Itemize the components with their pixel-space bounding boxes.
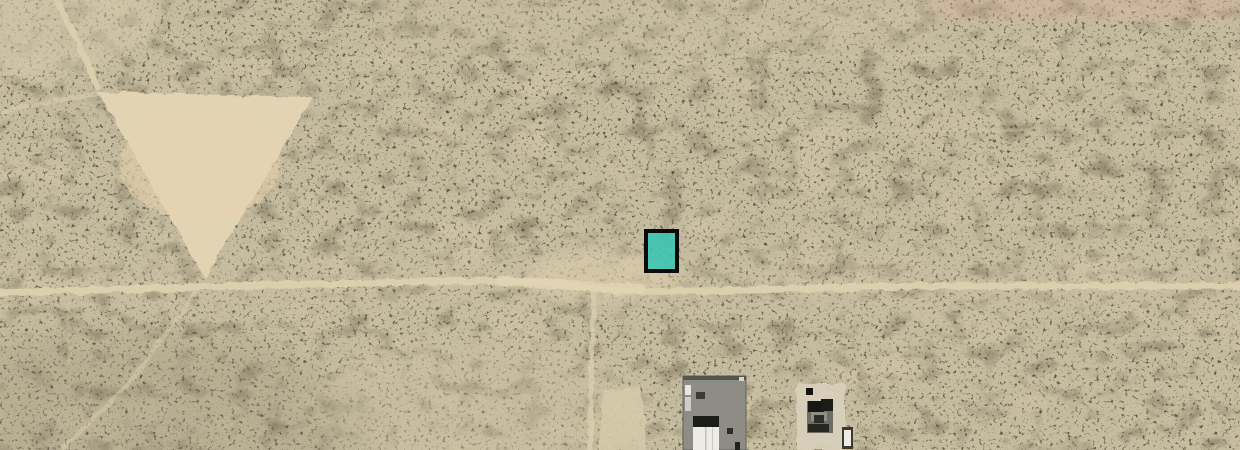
- roof-detail-white-3: [739, 377, 744, 381]
- parcel-highlight[interactable]: [646, 231, 677, 271]
- top-right-pink-band: [930, 0, 1240, 18]
- shed-dark-square: [806, 388, 813, 395]
- large-building: [683, 376, 746, 450]
- satellite-map[interactable]: [0, 0, 1240, 450]
- garage-seam-1: [705, 427, 707, 450]
- garage-seam-2: [712, 427, 713, 450]
- roof-detail-white-1: [685, 385, 691, 395]
- parcel-fill: [648, 233, 675, 269]
- roof-detail-dark-3: [735, 442, 740, 450]
- roof-detail-dark-1: [696, 392, 705, 399]
- house-roof-dark-mid: [814, 415, 824, 423]
- roof-detail-white-2: [685, 397, 691, 411]
- garage-dark-band: [693, 416, 719, 428]
- roof-detail-dark-2: [727, 428, 733, 434]
- triangle-inner-tint: [120, 110, 280, 220]
- cleared-strip-near-building: [599, 387, 647, 450]
- trailer: [842, 427, 853, 449]
- house-roof-dark-right: [821, 399, 833, 411]
- house-roof-dark-bottom: [808, 424, 829, 432]
- trailer-white-roof: [844, 430, 851, 446]
- top-center-light-band: [380, 0, 940, 50]
- roof-top-edge: [683, 376, 746, 380]
- satellite-map-viewport[interactable]: [0, 0, 1240, 450]
